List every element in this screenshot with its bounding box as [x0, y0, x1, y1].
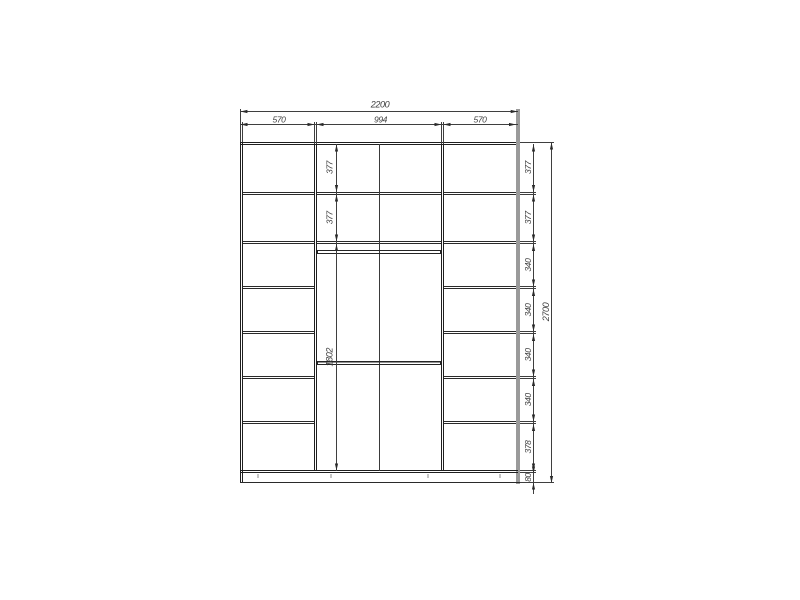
svg-text:2200: 2200 [370, 100, 390, 110]
svg-text:377: 377 [523, 210, 533, 225]
svg-text:340: 340 [523, 393, 533, 407]
svg-text:340: 340 [523, 303, 533, 317]
svg-text:1802: 1802 [325, 347, 335, 366]
svg-text:994: 994 [374, 115, 388, 125]
svg-text:378: 378 [523, 440, 533, 454]
svg-text:80: 80 [523, 473, 533, 482]
svg-text:340: 340 [523, 348, 533, 362]
svg-text:377: 377 [523, 159, 533, 174]
svg-text:570: 570 [273, 115, 287, 125]
svg-text:570: 570 [474, 115, 488, 125]
svg-text:340: 340 [523, 258, 533, 272]
svg-text:377: 377 [325, 210, 335, 225]
svg-text:2700: 2700 [541, 302, 551, 322]
svg-text:377: 377 [325, 159, 335, 174]
